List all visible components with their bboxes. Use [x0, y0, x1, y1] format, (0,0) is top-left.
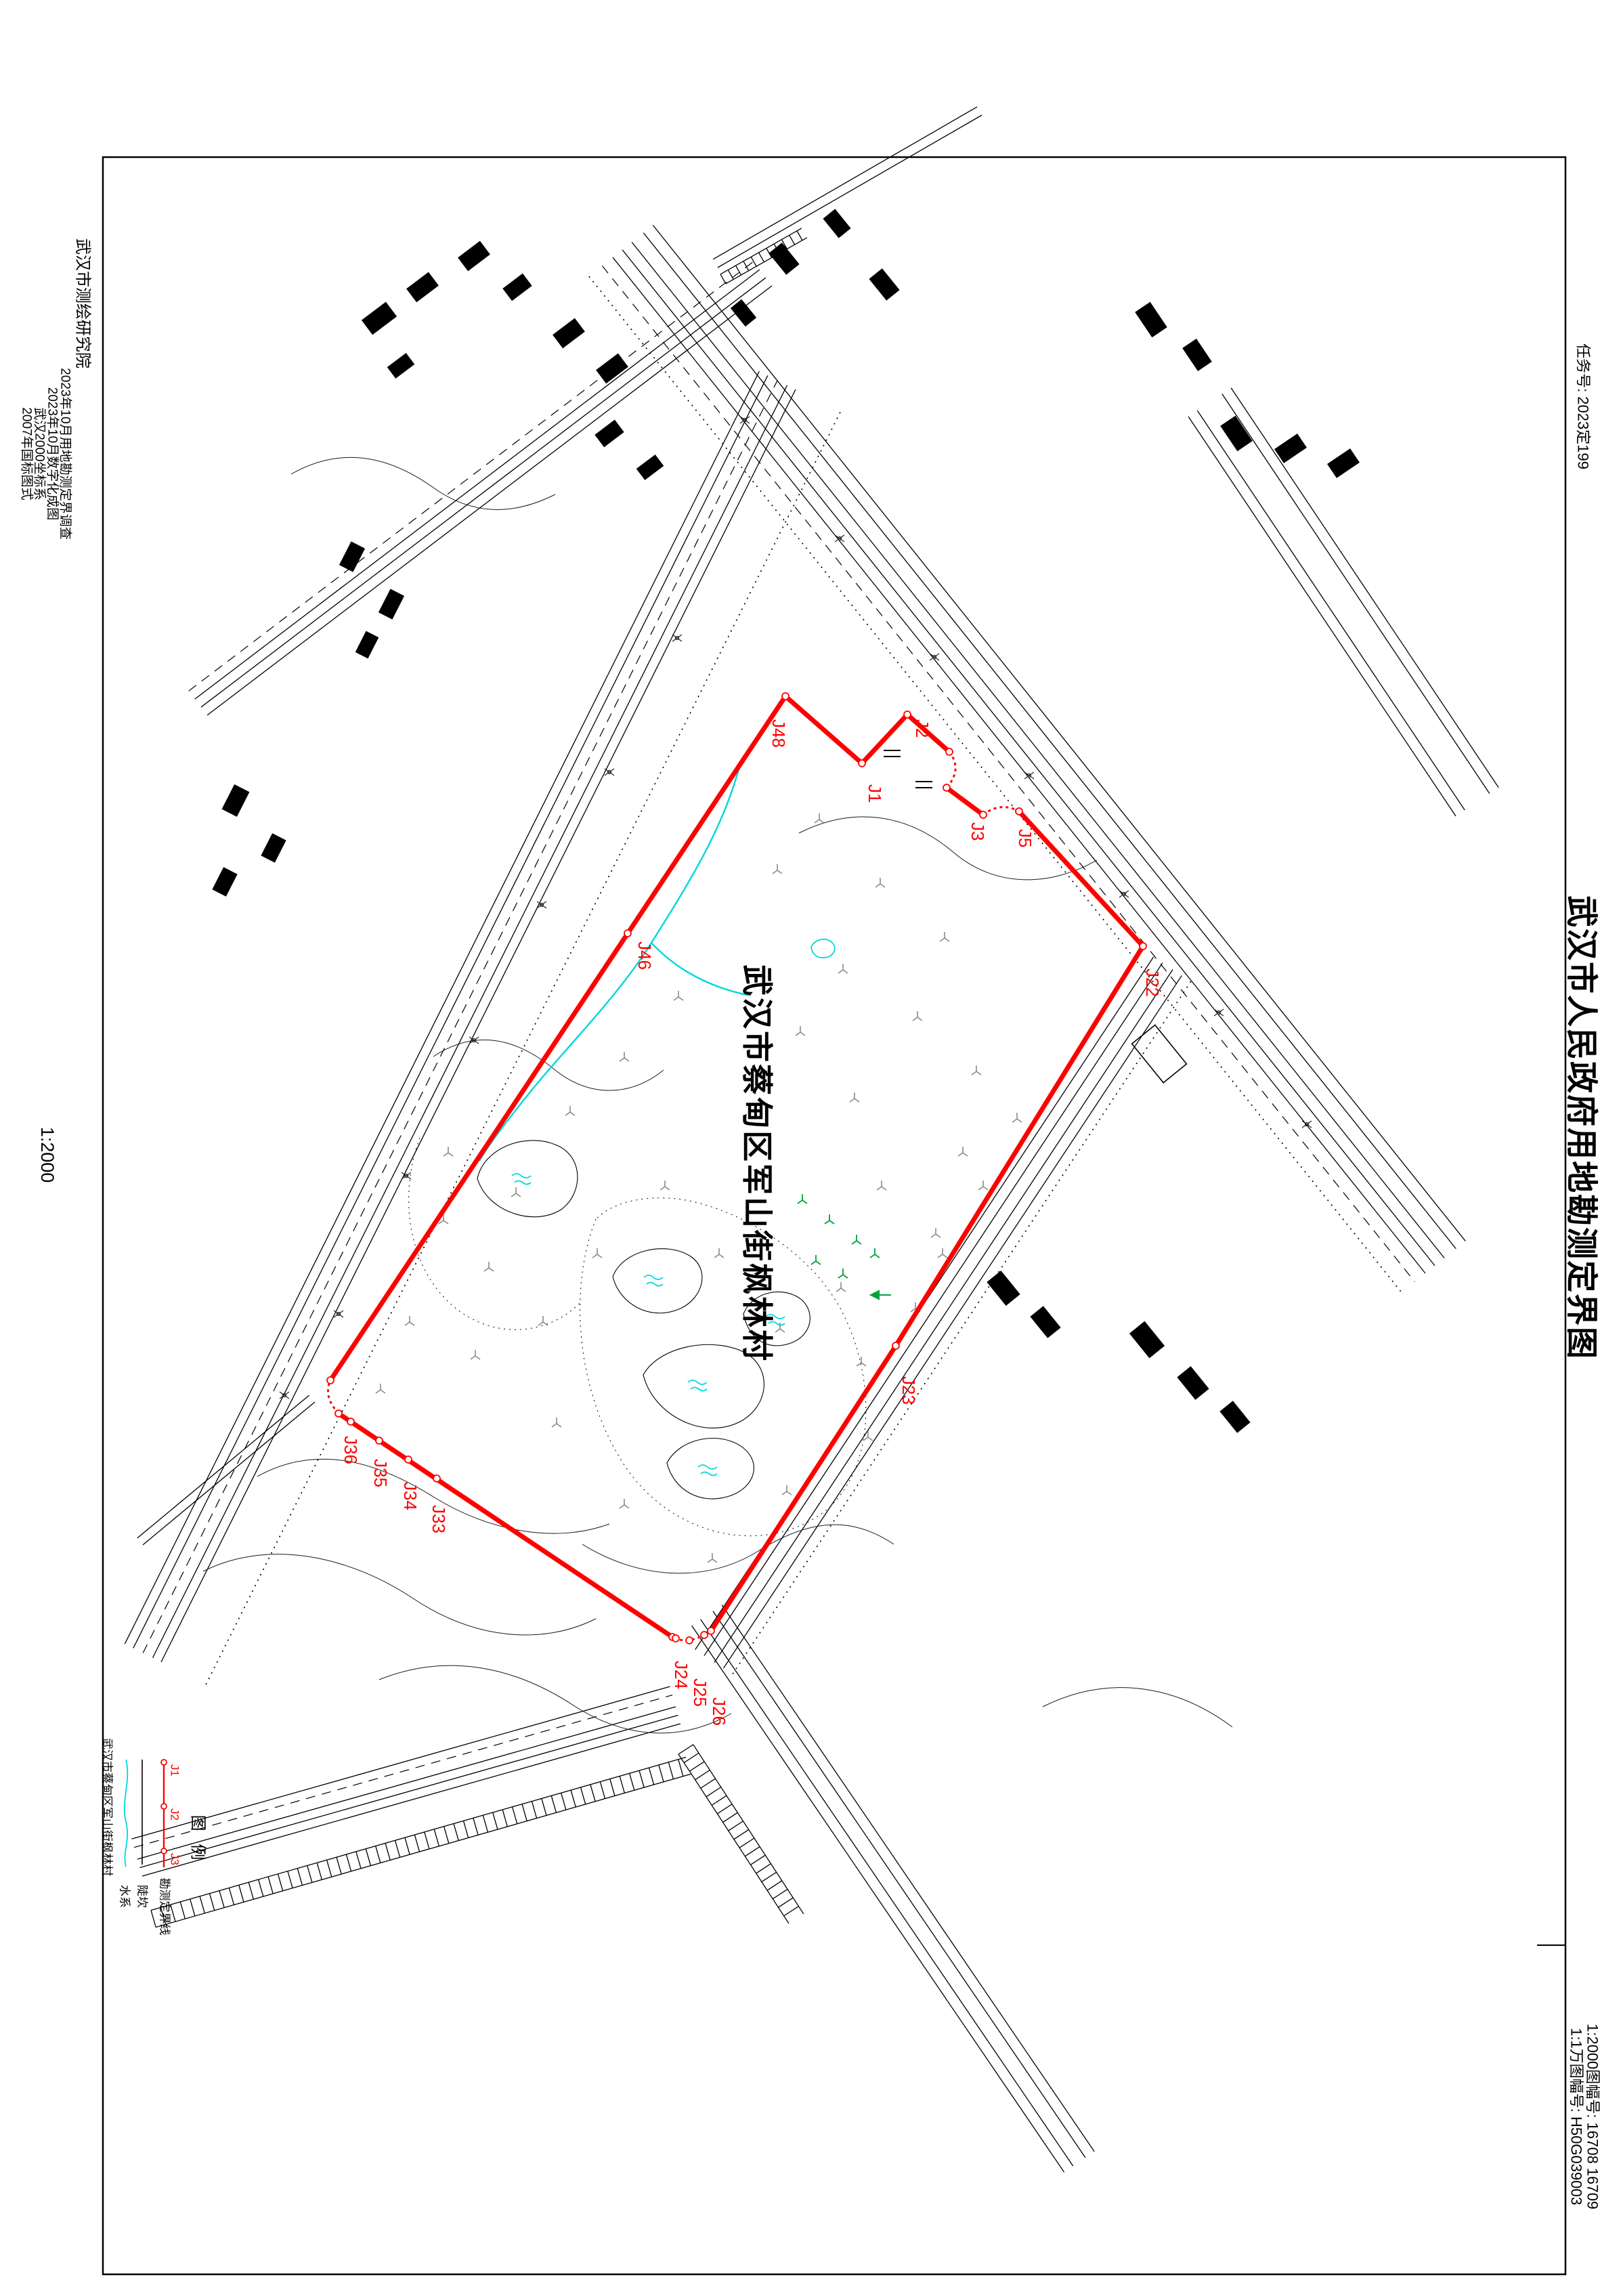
embankment-tick	[767, 1881, 782, 1890]
embankment-tick	[773, 1889, 787, 1898]
building	[823, 209, 850, 238]
road-line	[713, 107, 977, 259]
grass-icon	[972, 1065, 981, 1075]
embankment-tick	[751, 1855, 766, 1865]
embankment-tick	[493, 1812, 498, 1829]
embankment-tick	[346, 1854, 351, 1871]
embankment-tick	[483, 1815, 488, 1832]
road-line	[1231, 388, 1498, 788]
pole-icon	[402, 1172, 411, 1179]
embankment-tick	[513, 1807, 517, 1824]
boundary-vertex	[943, 784, 950, 791]
note-coordinate-system: 武汉2000坐标系	[33, 407, 47, 500]
area-label: 武汉市蔡甸区军山街枫林村	[739, 964, 775, 1363]
embankment-tick	[561, 1793, 566, 1810]
embankment-tick	[712, 1795, 727, 1805]
grass-icon	[708, 1553, 717, 1562]
embankment-tick	[239, 1885, 244, 1902]
grass-icon	[484, 1262, 494, 1271]
legend-point-j2: J2	[169, 1808, 181, 1821]
pond	[613, 1249, 702, 1313]
building	[1031, 1306, 1060, 1338]
pond	[477, 1141, 578, 1217]
grass-icon	[875, 878, 885, 887]
boundary-arc	[947, 752, 955, 788]
grass-icon	[938, 1248, 947, 1258]
grass-icon	[538, 1316, 548, 1325]
agency-name: 武汉市测绘研究院	[74, 238, 92, 368]
embankment-tick	[288, 1871, 293, 1888]
building	[731, 299, 756, 326]
road-line	[713, 1611, 1085, 2158]
road-line	[125, 371, 759, 1644]
building	[597, 354, 628, 383]
pond-small	[811, 939, 835, 958]
embankment-tick	[425, 1832, 429, 1849]
road-line	[195, 270, 760, 699]
building	[769, 243, 799, 274]
road-line	[602, 265, 1414, 1281]
boundary-vertex	[433, 1475, 440, 1482]
embankment-tick	[356, 1852, 361, 1869]
legend-water-label: 水系	[118, 1885, 131, 1908]
boundary-vertex	[782, 693, 789, 700]
embankment-tick	[758, 253, 764, 262]
grass-icon	[782, 1485, 792, 1495]
boundary-point-label: J2	[912, 719, 932, 738]
embankment-tick	[444, 1827, 449, 1844]
embankment-tick	[551, 1795, 556, 1812]
grass-icon	[565, 1106, 575, 1115]
grass-icon	[660, 1181, 670, 1190]
boundary-point-label: J22	[1142, 969, 1163, 997]
embankment-tick	[259, 1879, 263, 1896]
building	[379, 589, 404, 619]
grass-icon	[674, 991, 683, 1000]
embankment-tick	[790, 235, 795, 245]
embankment-tick	[649, 1768, 653, 1785]
boundary-vertex	[335, 1410, 342, 1417]
embankment-tick	[200, 1896, 204, 1913]
road-line	[134, 1695, 672, 1848]
legend-caption: 武汉市蔡甸区军山街枫林村	[101, 1738, 114, 1876]
embankment-tick	[706, 1787, 721, 1797]
map-frame	[103, 157, 1565, 2274]
road-line	[692, 1625, 1064, 2172]
building	[1328, 449, 1360, 477]
building	[503, 274, 532, 300]
pole-icon	[334, 1311, 343, 1317]
road-line	[189, 261, 754, 691]
embankment-tick	[180, 1902, 185, 1919]
grass-icon	[836, 1282, 846, 1292]
building	[1132, 1025, 1187, 1082]
building	[595, 420, 624, 446]
legend: 图 例 J1 J2 J3 勘测定界线 陡坎 水系 武汉市蔡甸区军山街枫林村	[101, 1738, 207, 1936]
boundary-segment	[711, 811, 1143, 1631]
boundary-point-label: J25	[690, 1678, 710, 1707]
building	[636, 455, 663, 480]
embankment-tick	[590, 1785, 595, 1802]
building	[869, 269, 899, 300]
grass-icon	[405, 1316, 414, 1325]
embankment-tick	[684, 1753, 699, 1762]
building	[387, 354, 414, 378]
embankment-tick	[751, 257, 756, 266]
boundary-arc	[983, 807, 1019, 815]
boundary-vertex	[686, 1637, 693, 1644]
grass-icon	[1012, 1113, 1022, 1122]
boundary-segment	[339, 1413, 672, 1637]
road-line	[139, 1715, 678, 1867]
road-line	[143, 1402, 315, 1545]
embankment-tick	[395, 1840, 400, 1857]
building	[1130, 1321, 1165, 1357]
building	[987, 1271, 1020, 1306]
building	[355, 631, 378, 658]
embankment-tick	[297, 1869, 302, 1886]
note-survey-date: 2023年10月用地勘测定界调查	[58, 368, 73, 539]
embankment-tick	[268, 1877, 273, 1894]
grass-icon	[620, 1499, 629, 1508]
building	[1221, 416, 1252, 450]
embankment-tick	[739, 1838, 754, 1848]
grass-icon	[444, 1147, 453, 1156]
embankment-tick	[376, 1846, 381, 1863]
legend-title: 图 例	[189, 1815, 207, 1865]
embankment-tick	[639, 1770, 644, 1787]
boundary-vertex	[1140, 943, 1146, 950]
pole-icon	[672, 635, 682, 641]
embankment-tick	[762, 1872, 777, 1882]
boundary-point-label: J5	[1015, 829, 1035, 847]
boundary-point-label: J23	[899, 1376, 919, 1405]
grass-icon	[592, 1248, 602, 1258]
embankment-tick	[736, 265, 741, 275]
boundary-point-label: J48	[769, 719, 789, 748]
buildings	[213, 209, 1359, 1432]
road-line	[1222, 394, 1490, 794]
embankment-tick	[797, 231, 802, 240]
road-line	[131, 1686, 670, 1839]
building	[340, 542, 365, 572]
embankment-tick	[723, 1812, 738, 1822]
boundary-point-label: J24	[671, 1661, 691, 1689]
boundary-vertex	[672, 1635, 679, 1642]
road-line	[722, 1605, 1094, 2152]
embankment-tick	[678, 1745, 693, 1754]
road-line	[1197, 410, 1465, 810]
pole-icon	[1302, 1121, 1312, 1128]
grass-icon	[471, 1350, 480, 1359]
embankment-tick	[405, 1837, 410, 1854]
survey-map-sheet: J48J1J2J3J5J22J23J24J25J26J33J34J35J36J4…	[0, 0, 1600, 2296]
grass-icon	[714, 1248, 724, 1258]
building	[222, 785, 249, 817]
embankment-tick	[414, 1835, 419, 1852]
building	[213, 868, 237, 896]
boundary-point-label: J3	[968, 822, 988, 841]
embankment-edge	[156, 1774, 691, 1927]
embankment-tick	[717, 1804, 732, 1814]
boundary-segment	[947, 788, 983, 815]
green-grass-icon	[811, 1255, 821, 1264]
road-network	[125, 107, 1498, 2172]
embankment-tick	[571, 1790, 576, 1807]
building	[1183, 339, 1211, 371]
green-grass-icon	[870, 1248, 880, 1258]
grass-icon	[838, 964, 848, 973]
embankment-tick	[542, 1798, 546, 1815]
boundary-vertex	[701, 1632, 708, 1638]
embankment-tick	[473, 1818, 478, 1835]
legend-boundary-point	[161, 1760, 167, 1765]
road-line	[718, 115, 982, 268]
building	[1177, 1367, 1209, 1399]
green-grass-icon	[825, 1214, 834, 1224]
boundary-arc	[328, 1380, 339, 1413]
sheet-number-10000: 1:1万图幅号: H50G039003	[1568, 2028, 1585, 2205]
boundary-vertex	[347, 1418, 354, 1425]
embankment-tick	[317, 1863, 322, 1879]
legend-point-j3: J3	[169, 1853, 181, 1865]
embankment-tick	[454, 1824, 458, 1841]
embankment-tick	[630, 1773, 634, 1790]
green-grass-icon	[852, 1235, 861, 1244]
embankment-tick	[689, 1762, 704, 1771]
road-line	[201, 278, 766, 707]
grass-icon	[850, 1092, 859, 1102]
embankment-tick	[219, 1891, 224, 1908]
road-line	[207, 286, 772, 715]
boundary-vertex	[892, 1342, 899, 1349]
map-scale: 1:2000	[37, 1127, 58, 1183]
grass-icon	[620, 1052, 629, 1061]
boundary-point-label: J1	[865, 784, 885, 803]
embankment-tick	[337, 1857, 341, 1874]
embankment-tick	[463, 1821, 468, 1837]
boundary-point-label: J33	[429, 1505, 449, 1533]
embankment-tick	[210, 1894, 215, 1911]
boundary-point-label: J34	[400, 1482, 420, 1510]
boundary-point-label: J36	[341, 1436, 361, 1464]
green-grass-icon	[838, 1269, 848, 1278]
boundary-vertex	[708, 1628, 714, 1634]
embankment-tick	[668, 1762, 673, 1779]
boundary-point-label: J26	[709, 1697, 729, 1726]
embankment-tick	[229, 1888, 234, 1905]
task-number: 任务号: 2023定199	[1575, 343, 1592, 469]
embankment-tick	[151, 1910, 156, 1927]
embankment-tick	[581, 1787, 586, 1804]
embankment-tick	[610, 1779, 615, 1796]
embankment-tick	[434, 1829, 439, 1846]
grass-icon	[877, 1181, 886, 1190]
legend-water-line	[125, 1760, 128, 1867]
building	[261, 834, 286, 862]
embankment-tick	[366, 1849, 370, 1866]
embankment-tick	[190, 1899, 195, 1916]
building	[553, 318, 584, 347]
boundary-vertex	[980, 811, 987, 818]
embankment-tick	[307, 1865, 312, 1882]
embankment-tick	[327, 1860, 332, 1877]
legend-point-j1: J1	[169, 1764, 181, 1777]
building	[362, 302, 397, 334]
boundary-vertex	[946, 748, 953, 755]
boundary-vertex	[904, 711, 911, 718]
water-features	[477, 767, 835, 1499]
embankment-tick	[756, 1864, 771, 1873]
boundary-vertex	[376, 1437, 383, 1444]
green-arrow-icon	[871, 1291, 891, 1299]
sheet-title: 武汉市人民政府用地勘测定界图	[1564, 895, 1600, 1360]
embankment-tick	[695, 1770, 710, 1779]
legend-boundary-label: 勘测定界线	[158, 1878, 171, 1936]
embankment-tick	[385, 1843, 390, 1860]
boundary-vertex	[327, 1377, 334, 1384]
grass-icon	[958, 1147, 968, 1156]
building	[458, 241, 490, 270]
boundary-point-label: J35	[370, 1459, 391, 1487]
embankment-tick	[620, 1776, 624, 1793]
building	[407, 272, 438, 301]
embankment-tick	[701, 1779, 716, 1788]
grass-icon	[376, 1384, 385, 1393]
embankment-tick	[502, 1810, 507, 1827]
legend-scarp-label: 陡坎	[136, 1885, 149, 1908]
grass-icon	[552, 1418, 561, 1427]
grass-icon	[940, 932, 949, 941]
embankment-tick	[729, 1821, 743, 1831]
note-symbol-standard: 2007年国标图式	[20, 407, 35, 500]
embankment-tick	[659, 1765, 664, 1782]
building	[1136, 302, 1167, 337]
embankment-tick	[720, 274, 726, 284]
boundary-vertex	[1016, 808, 1022, 815]
embankment-tick	[734, 1829, 749, 1839]
legend-boundary-point	[161, 1848, 167, 1854]
boundary-vertex	[859, 760, 865, 767]
grass-icon	[931, 1228, 940, 1237]
grass-icon	[796, 1026, 805, 1036]
embankment-tick	[532, 1802, 536, 1819]
road-line	[1188, 417, 1456, 816]
embankment-tick	[248, 1882, 253, 1899]
boundary-vertex	[624, 930, 631, 937]
grass-icon	[978, 1181, 988, 1190]
utility-poles	[280, 417, 1312, 1399]
embankment-tick	[745, 1847, 760, 1856]
stream-branch	[651, 943, 750, 996]
green-grass-icon	[798, 1194, 807, 1204]
embankment-tick	[784, 1907, 799, 1916]
map-canvas: J48J1J2J3J5J22J23J24J25J26J33J34J35J36J4…	[0, 0, 1600, 2296]
grass-icon	[815, 813, 824, 823]
road-line	[701, 1619, 1073, 2166]
embankment-tick	[778, 1898, 793, 1907]
embankment-tick	[278, 1874, 282, 1891]
sheet-number-2000: 1:2000图幅号: 16708 16709	[1584, 2024, 1600, 2209]
boundary-point-label: J46	[634, 941, 655, 970]
building	[1275, 434, 1307, 463]
culvert-marks	[884, 750, 932, 788]
pole-icon	[605, 769, 614, 775]
embankment-tick	[728, 270, 733, 280]
grass-icon	[913, 1011, 922, 1021]
road-line	[589, 276, 1402, 1292]
boundary-vertex	[405, 1456, 412, 1463]
embankment-tick	[678, 1760, 683, 1777]
building	[1220, 1401, 1250, 1432]
legend-boundary-point	[161, 1804, 167, 1809]
grass-icon	[773, 864, 782, 874]
embankment-tick	[600, 1782, 605, 1799]
embankment-edge	[151, 1757, 686, 1910]
note-digitize-date: 2023年10月数字化成图	[45, 387, 60, 520]
embankment-tick	[522, 1804, 527, 1821]
